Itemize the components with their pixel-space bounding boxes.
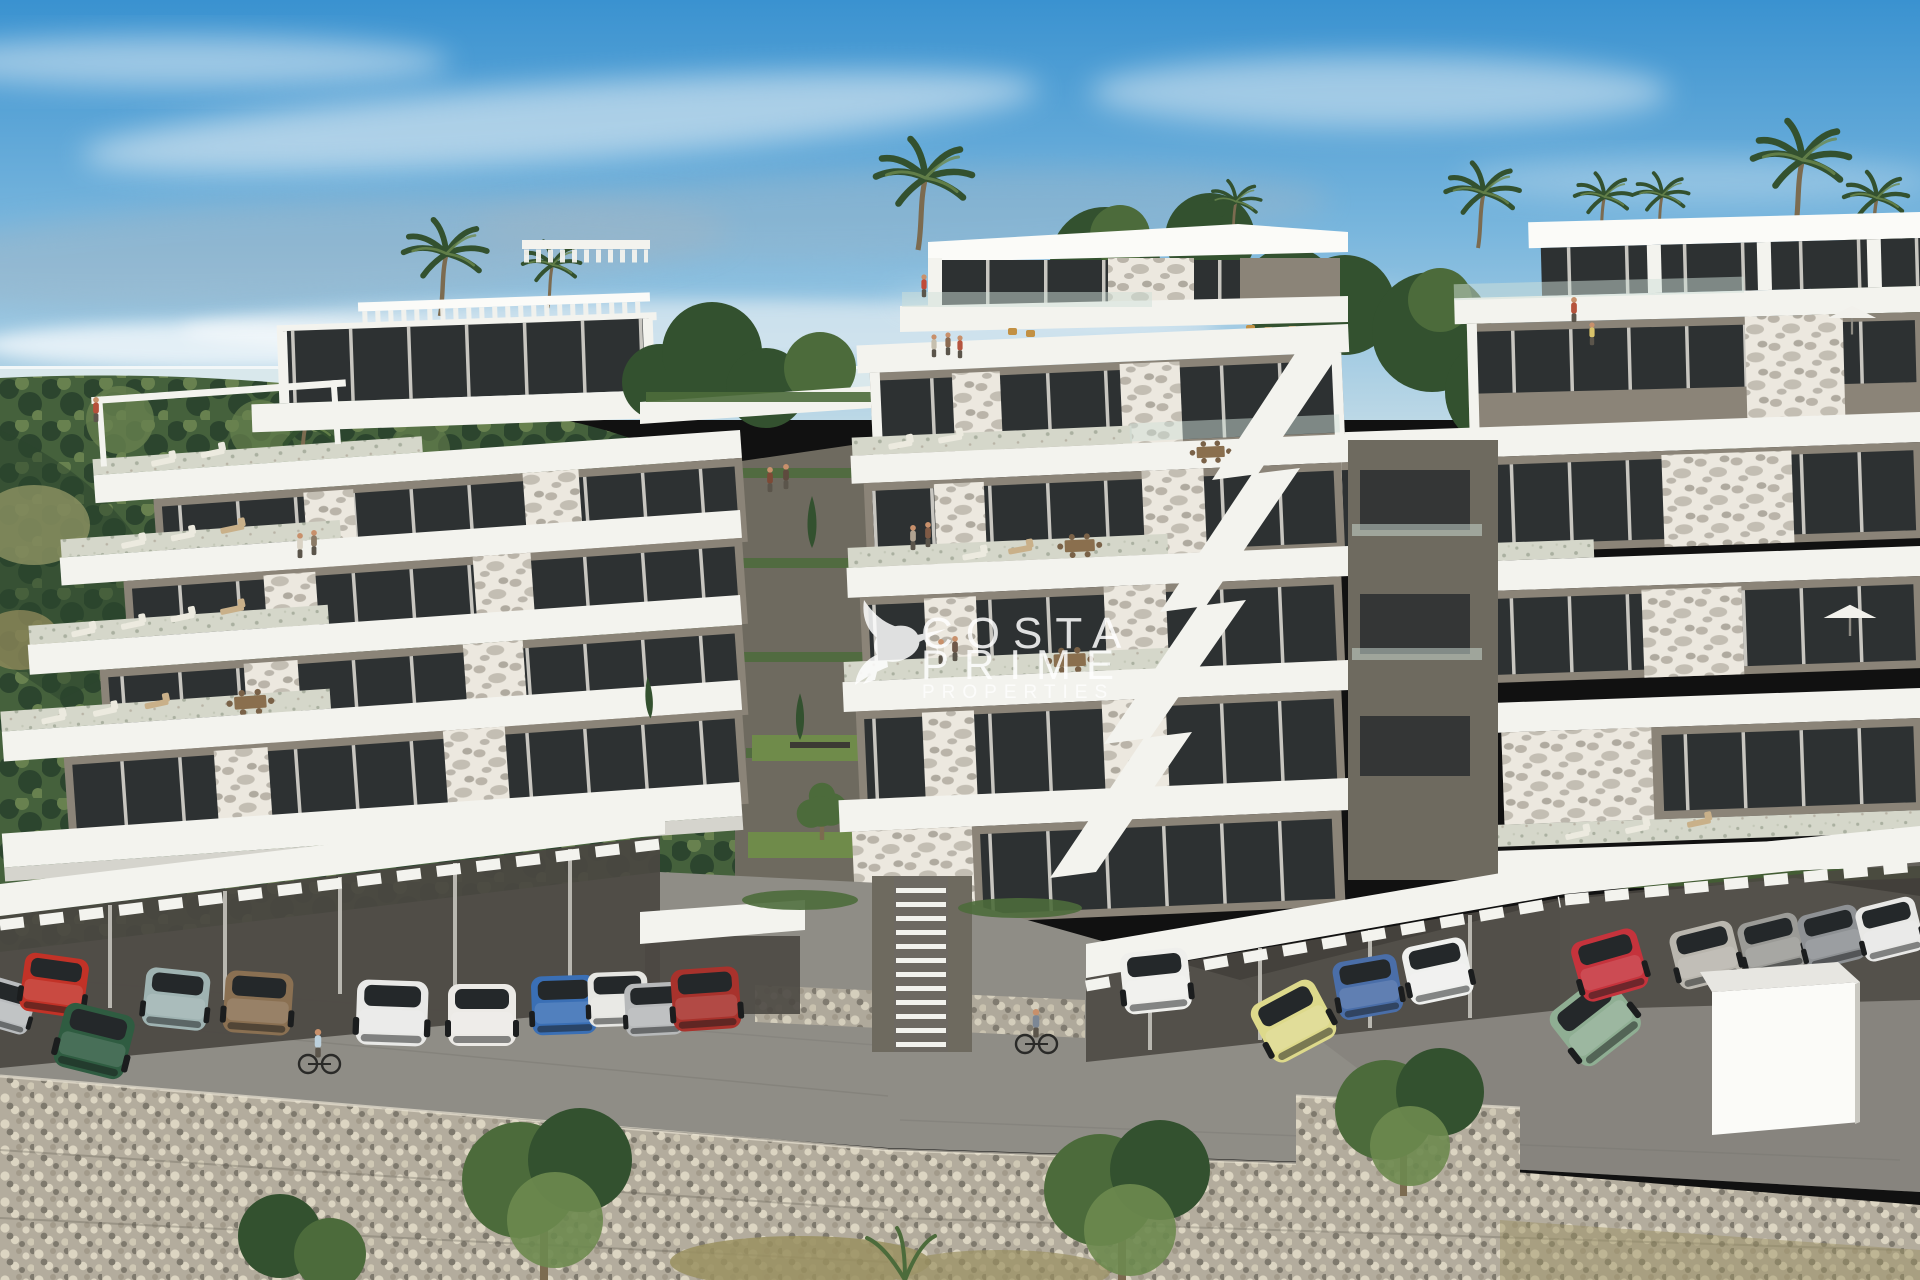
resident-figure: [93, 397, 99, 422]
car-white-mercedes: [1116, 946, 1196, 1015]
resident-figure: [1589, 322, 1594, 345]
car-white-sedan: [445, 984, 519, 1046]
resident-figure: [945, 332, 950, 355]
resident-figure: [910, 525, 916, 550]
car-white-suv: [352, 979, 432, 1047]
resident-figure: [931, 334, 936, 357]
resident-figure: [297, 533, 303, 558]
render-image: COSTA PRIME PROPERTIES: [0, 0, 1920, 1280]
resident-figure: [921, 274, 926, 297]
resident-figure: [1571, 297, 1577, 322]
resident-figure: [783, 464, 789, 489]
resident-figure: [925, 522, 931, 547]
resident-figure: [767, 467, 773, 492]
car-bronze-suv: [219, 969, 297, 1036]
resident-figure: [311, 530, 317, 555]
garage-kiosk: [1700, 962, 1860, 1135]
resident-figure: [957, 335, 962, 358]
watermark-line3: PROPERTIES: [922, 682, 1114, 703]
hillside-complex-render: COSTA PRIME PROPERTIES: [0, 0, 1920, 1280]
car-red-mercedes: [667, 965, 745, 1032]
watermark-line2: PRIME: [921, 641, 1129, 688]
car-blue-compact: [1328, 952, 1407, 1022]
car-teal-convertible: [138, 966, 214, 1032]
